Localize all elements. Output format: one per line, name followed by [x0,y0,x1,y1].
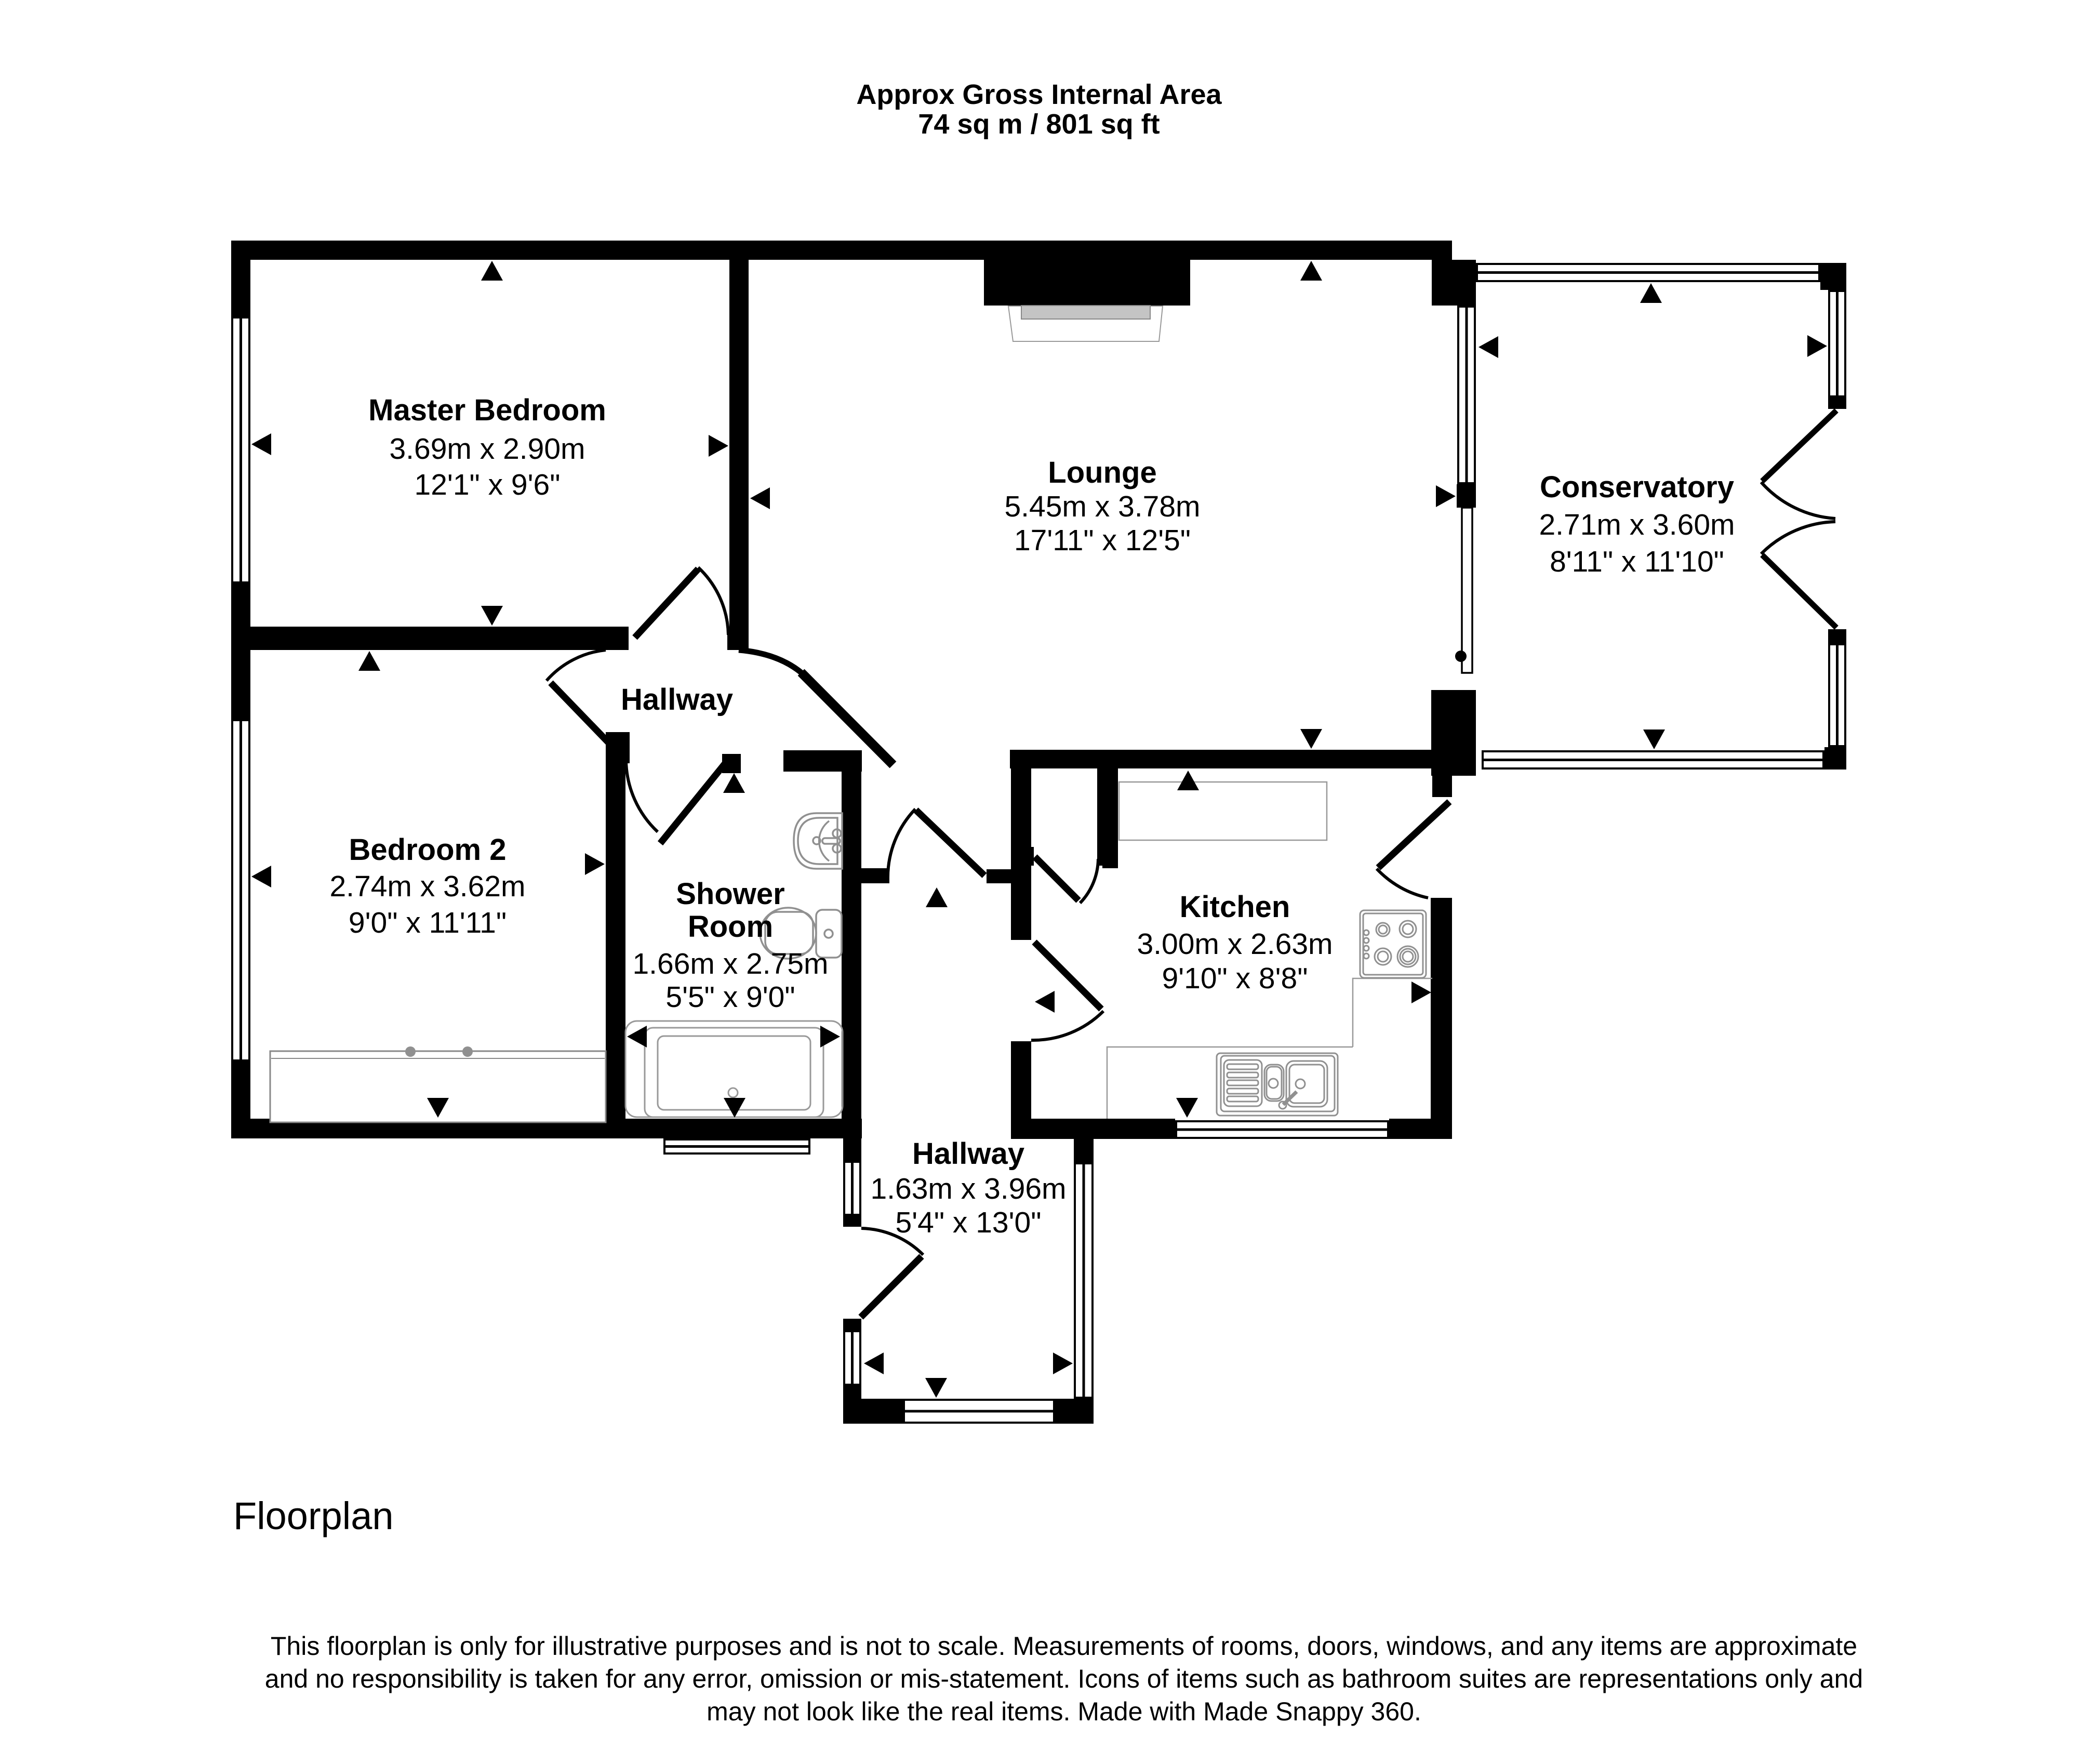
svg-text:Hallway: Hallway [912,1137,1024,1171]
svg-text:Conservatory: Conservatory [1540,470,1734,504]
svg-text:Approx Gross Internal Area: Approx Gross Internal Area [856,79,1222,110]
svg-text:1.63m x 3.96m: 1.63m x 3.96m [870,1172,1066,1205]
svg-text:5'4" x 13'0": 5'4" x 13'0" [896,1206,1042,1239]
svg-text:5.45m x 3.78m: 5.45m x 3.78m [1004,490,1200,523]
svg-text:2.74m x 3.62m: 2.74m x 3.62m [329,870,525,903]
svg-text:This floorplan is only for ill: This floorplan is only for illustrative … [271,1632,1857,1661]
svg-text:Floorplan: Floorplan [233,1494,394,1537]
svg-text:3.69m x 2.90m: 3.69m x 2.90m [389,432,585,466]
svg-text:1.66m x 2.75m: 1.66m x 2.75m [632,947,828,980]
svg-text:may not look like the real ite: may not look like the real items. Made w… [707,1697,1421,1726]
svg-text:Shower: Shower [676,877,785,911]
svg-text:5'5" x 9'0": 5'5" x 9'0" [665,980,795,1014]
svg-text:and no responsibility is taken: and no responsibility is taken for any e… [265,1664,1863,1693]
svg-text:2.71m x 3.60m: 2.71m x 3.60m [1539,508,1735,541]
svg-text:12'1" x 9'6": 12'1" x 9'6" [415,468,561,501]
svg-text:Hallway: Hallway [621,683,733,717]
svg-text:9'10" x 8'8": 9'10" x 8'8" [1162,962,1308,995]
svg-text:3.00m x 2.63m: 3.00m x 2.63m [1137,927,1333,961]
svg-text:74 sq m / 801 sq ft: 74 sq m / 801 sq ft [918,109,1160,140]
svg-text:Master Bedroom: Master Bedroom [368,393,606,427]
svg-text:Bedroom 2: Bedroom 2 [349,833,507,867]
svg-text:Kitchen: Kitchen [1180,890,1290,924]
svg-text:17'11" x 12'5": 17'11" x 12'5" [1014,524,1191,557]
svg-text:9'0" x 11'11": 9'0" x 11'11" [349,906,507,939]
svg-text:Lounge: Lounge [1048,456,1156,489]
svg-text:8'11" x 11'10": 8'11" x 11'10" [1550,545,1724,578]
svg-text:Room: Room [688,910,773,944]
